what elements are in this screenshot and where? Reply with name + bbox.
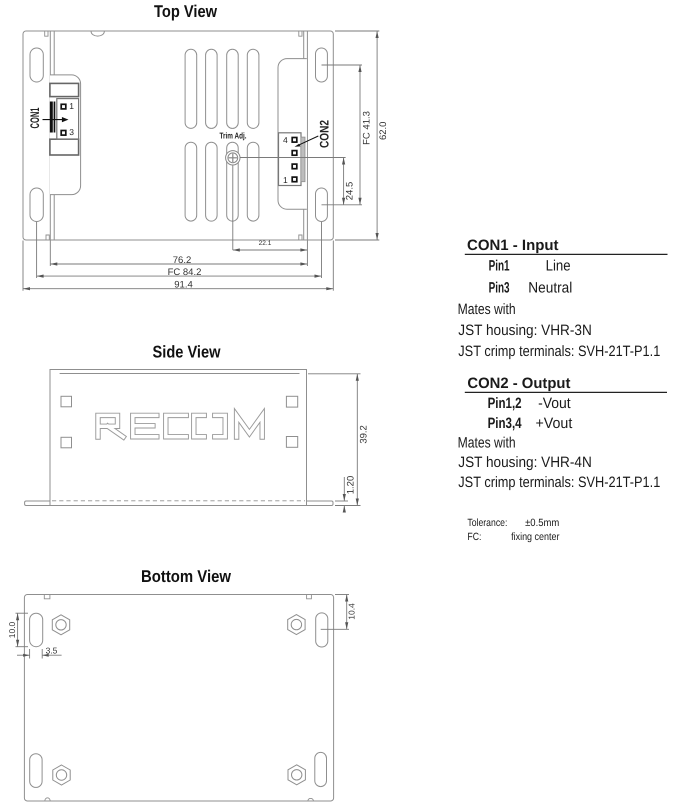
svg-text:4: 4 xyxy=(283,135,288,145)
svg-text:10.4: 10.4 xyxy=(347,603,357,620)
svg-text:3: 3 xyxy=(69,127,74,137)
svg-text:Mates with: Mates with xyxy=(458,435,516,452)
svg-text:JST housing: VHR-3N: JST housing: VHR-3N xyxy=(458,322,592,339)
svg-text:39.2: 39.2 xyxy=(359,425,370,444)
svg-text:Neutral: Neutral xyxy=(528,279,572,296)
svg-text:FC 41.3: FC 41.3 xyxy=(361,111,372,145)
svg-text:CON2 - Output: CON2 - Output xyxy=(467,375,570,392)
svg-text:1: 1 xyxy=(69,101,74,111)
svg-text:CON1: CON1 xyxy=(28,107,42,128)
svg-text:Line: Line xyxy=(546,258,571,275)
svg-text:fixing center: fixing center xyxy=(511,531,560,543)
svg-text:76.2: 76.2 xyxy=(173,255,192,266)
svg-text:-Vout: -Vout xyxy=(538,395,571,412)
svg-text:JST housing: VHR-4N: JST housing: VHR-4N xyxy=(458,454,592,471)
svg-text:CON2: CON2 xyxy=(317,120,331,148)
svg-text:CON1 - Input: CON1 - Input xyxy=(467,237,559,254)
svg-text:Pin3: Pin3 xyxy=(489,279,510,296)
svg-text:±0.5mm: ±0.5mm xyxy=(525,517,559,529)
svg-text:1: 1 xyxy=(283,175,288,185)
svg-text:+Vout: +Vout xyxy=(536,415,574,432)
svg-text:24.5: 24.5 xyxy=(344,182,355,201)
svg-text:FC 84.2: FC 84.2 xyxy=(168,267,202,278)
svg-text:Pin1,2: Pin1,2 xyxy=(488,395,522,412)
svg-text:Pin1: Pin1 xyxy=(489,258,510,275)
svg-text:Mates with: Mates with xyxy=(458,301,516,318)
svg-text:10.0: 10.0 xyxy=(7,621,17,638)
svg-text:Bottom View: Bottom View xyxy=(141,567,232,586)
svg-text:Trim Adj.: Trim Adj. xyxy=(220,131,247,141)
svg-text:1.20: 1.20 xyxy=(346,476,357,495)
svg-text:FC:: FC: xyxy=(467,531,481,543)
svg-text:91.4: 91.4 xyxy=(174,280,193,291)
svg-text:62.0: 62.0 xyxy=(378,122,389,141)
svg-text:Side View: Side View xyxy=(153,343,222,362)
svg-text:3.5: 3.5 xyxy=(46,646,58,656)
svg-text:JST crimp terminals: SVH-21T-P: JST crimp terminals: SVH-21T-P1.1 xyxy=(458,474,660,491)
svg-text:Pin3,4: Pin3,4 xyxy=(488,415,523,432)
svg-text:Top View: Top View xyxy=(154,2,218,21)
svg-text:22.1: 22.1 xyxy=(259,240,272,247)
svg-text:Tolerance:: Tolerance: xyxy=(467,517,507,529)
svg-text:JST crimp terminals: SVH-21T-P: JST crimp terminals: SVH-21T-P1.1 xyxy=(458,343,660,360)
